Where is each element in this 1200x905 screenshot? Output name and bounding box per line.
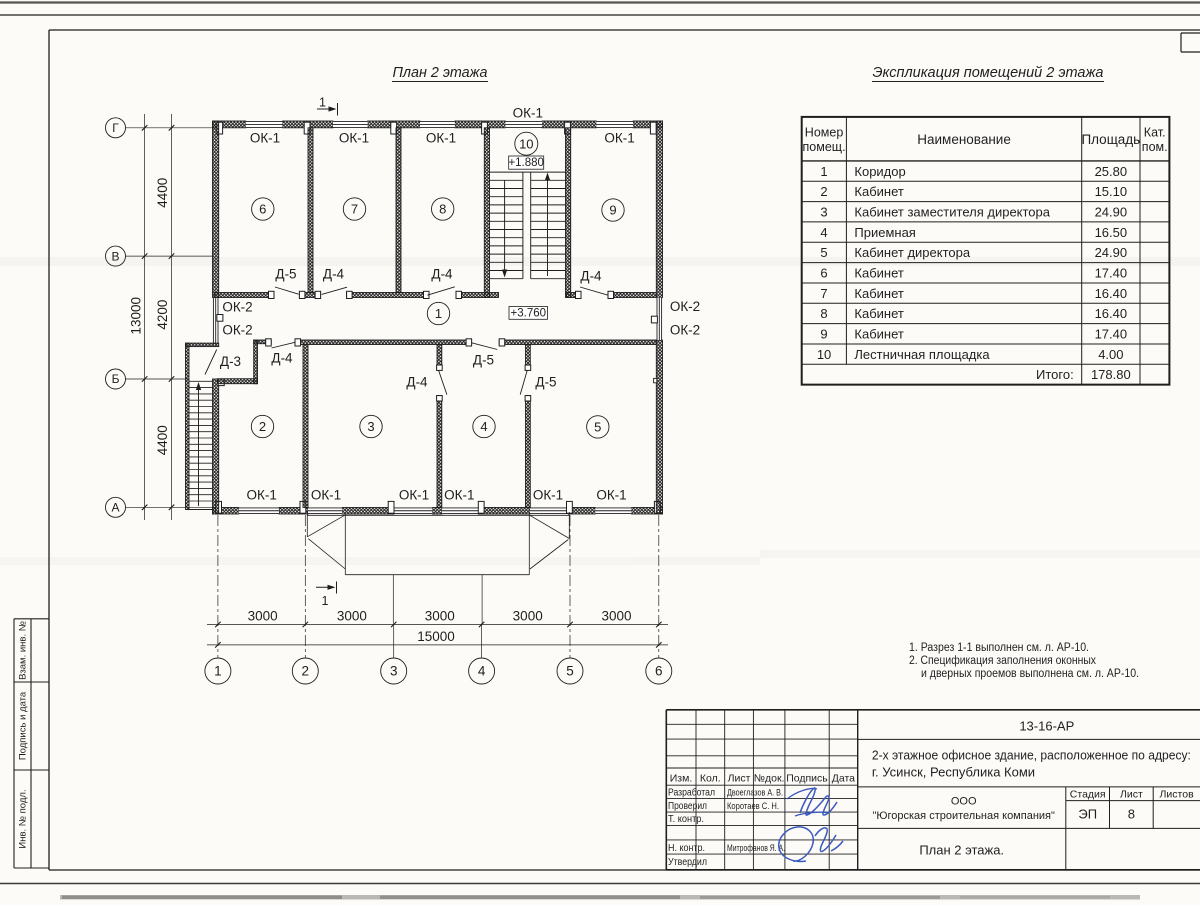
svg-text:План 2 этажа: План 2 этажа <box>393 64 488 81</box>
svg-text:Митрофанов Я. А.: Митрофанов Я. А. <box>727 843 785 853</box>
svg-text:Б: Б <box>112 372 120 386</box>
svg-text:А: А <box>111 501 119 515</box>
svg-text:Д-4: Д-4 <box>580 269 602 284</box>
svg-text:1. Разрез 1-1 выполнен см. л.: 1. Разрез 1-1 выполнен см. л. АР-10. <box>909 642 1089 654</box>
svg-text:Подпись: Подпись <box>786 773 828 785</box>
svg-text:Экспликация помещений 2 этажа: Экспликация помещений 2 этажа <box>873 64 1104 81</box>
svg-text:Изм.: Изм. <box>670 773 693 785</box>
svg-text:4.00: 4.00 <box>1098 347 1123 362</box>
svg-text:24.90: 24.90 <box>1095 204 1128 219</box>
svg-text:ООО: ООО <box>951 796 977 808</box>
svg-text:Площадь: Площадь <box>1081 132 1140 147</box>
svg-text:+3.760: +3.760 <box>511 308 547 320</box>
svg-text:г. Усинск, Республика Коми: г. Усинск, Республика Коми <box>872 765 1035 780</box>
svg-text:1: 1 <box>322 594 329 608</box>
svg-text:ОК-1: ОК-1 <box>426 131 456 146</box>
svg-text:4400: 4400 <box>155 178 170 208</box>
svg-text:Т. контр.: Т. контр. <box>668 814 704 825</box>
svg-text:Кат.: Кат. <box>1144 126 1166 140</box>
svg-text:15000: 15000 <box>417 629 455 644</box>
svg-text:ОК-1: ОК-1 <box>247 488 277 503</box>
svg-text:13-16-АР: 13-16-АР <box>1019 718 1074 733</box>
svg-text:24.90: 24.90 <box>1095 245 1128 260</box>
svg-text:10: 10 <box>817 347 831 362</box>
svg-text:Двоеглазов А. В.: Двоеглазов А. В. <box>727 787 783 797</box>
svg-text:1: 1 <box>820 164 827 179</box>
svg-text:Д-5: Д-5 <box>535 375 556 390</box>
svg-text:3000: 3000 <box>337 609 367 624</box>
svg-text:Д-4: Д-4 <box>406 375 428 390</box>
svg-text:ОК-1: ОК-1 <box>399 488 429 503</box>
svg-text:Лист: Лист <box>728 773 751 785</box>
svg-text:Г: Г <box>112 121 119 135</box>
svg-text:Кабинет: Кабинет <box>854 184 903 199</box>
svg-text:Кабинет: Кабинет <box>854 326 903 341</box>
svg-text:3000: 3000 <box>248 609 278 624</box>
svg-text:4: 4 <box>480 419 487 434</box>
svg-text:13000: 13000 <box>129 297 144 335</box>
svg-text:В: В <box>111 249 119 263</box>
svg-text:Приемная: Приемная <box>854 225 915 240</box>
svg-text:4200: 4200 <box>155 300 170 330</box>
svg-text:Д-5: Д-5 <box>275 267 296 282</box>
svg-text:16.40: 16.40 <box>1095 286 1128 301</box>
svg-text:Кол.: Кол. <box>700 773 721 785</box>
svg-text:ОК-1: ОК-1 <box>533 488 563 503</box>
svg-text:ОК-2: ОК-2 <box>670 323 700 338</box>
svg-text:Кабинет: Кабинет <box>854 306 903 321</box>
svg-text:7: 7 <box>820 286 827 301</box>
svg-text:Н. контр.: Н. контр. <box>668 843 705 854</box>
svg-text:8: 8 <box>439 202 446 217</box>
svg-text:+1.880: +1.880 <box>508 157 544 169</box>
svg-text:16.50: 16.50 <box>1095 225 1128 240</box>
svg-text:Д-4: Д-4 <box>323 267 345 282</box>
svg-text:Подпись и дата: Подпись и дата <box>18 691 29 760</box>
svg-text:Д-4: Д-4 <box>431 267 453 282</box>
svg-text:"Югорская строительная компани: "Югорская строительная компания" <box>872 810 1055 822</box>
svg-text:ОК-1: ОК-1 <box>596 488 626 503</box>
svg-text:9: 9 <box>609 203 616 218</box>
svg-text:Наименование: Наименование <box>917 132 1011 147</box>
svg-text:ОК-1: ОК-1 <box>604 131 634 146</box>
svg-text:1: 1 <box>319 96 326 110</box>
svg-text:3: 3 <box>390 664 398 679</box>
svg-text:Кабинет: Кабинет <box>854 286 903 301</box>
svg-text:16.40: 16.40 <box>1095 306 1128 321</box>
svg-text:ОК-2: ОК-2 <box>222 300 252 315</box>
svg-text:1: 1 <box>214 664 222 679</box>
svg-text:5: 5 <box>820 245 827 260</box>
svg-text:4400: 4400 <box>155 425 170 455</box>
svg-text:Д-5: Д-5 <box>473 353 494 368</box>
svg-text:пом.: пом. <box>1142 140 1168 154</box>
svg-text:Дата: Дата <box>832 773 855 785</box>
svg-text:Кабинет заместителя директора: Кабинет заместителя директора <box>854 204 1050 219</box>
svg-text:9: 9 <box>820 326 827 341</box>
svg-text:5: 5 <box>566 664 574 679</box>
svg-text:17.40: 17.40 <box>1095 326 1128 341</box>
svg-text:4: 4 <box>478 664 486 679</box>
svg-text:2: 2 <box>302 664 310 679</box>
svg-text:Итого:: Итого: <box>1036 367 1074 382</box>
svg-text:№док.: №док. <box>754 773 785 785</box>
svg-text:3: 3 <box>820 204 827 219</box>
svg-text:3000: 3000 <box>425 609 455 624</box>
svg-text:Коротаев С. Н.: Коротаев С. Н. <box>727 801 779 811</box>
svg-text:План 2 этажа.: План 2 этажа. <box>919 842 1004 857</box>
svg-text:Лист: Лист <box>1120 788 1143 800</box>
svg-text:Проверил: Проверил <box>668 801 707 812</box>
svg-text:3000: 3000 <box>601 609 631 624</box>
svg-text:Кабинет директора: Кабинет директора <box>854 245 970 260</box>
svg-text:178.80: 178.80 <box>1091 367 1131 382</box>
svg-text:Разработал: Разработал <box>668 786 715 798</box>
svg-text:Д-4: Д-4 <box>271 351 293 366</box>
svg-text:25.80: 25.80 <box>1095 164 1128 179</box>
svg-text:15.10: 15.10 <box>1095 184 1128 199</box>
svg-text:10: 10 <box>519 136 533 151</box>
svg-text:8: 8 <box>1128 806 1135 821</box>
svg-text:17.40: 17.40 <box>1095 265 1128 280</box>
svg-text:Лестничная площадка: Лестничная площадка <box>854 347 990 362</box>
svg-text:6: 6 <box>259 202 266 217</box>
svg-text:ОК-1: ОК-1 <box>513 106 543 121</box>
svg-text:помещ.: помещ. <box>803 140 846 154</box>
svg-text:3000: 3000 <box>513 609 543 624</box>
svg-text:ОК-1: ОК-1 <box>311 488 341 503</box>
svg-text:Номер: Номер <box>805 126 844 140</box>
svg-text:2-х этажное офисное здание, ра: 2-х этажное офисное здание, расположенно… <box>872 748 1191 763</box>
svg-text:7: 7 <box>351 202 358 217</box>
svg-text:и дверных проемов выполнена см: и дверных проемов выполнена см. л. АР-10… <box>921 668 1139 680</box>
svg-text:Взам. инв. №: Взам. инв. № <box>18 621 29 680</box>
svg-text:ОК-1: ОК-1 <box>339 131 369 146</box>
svg-text:ЭП: ЭП <box>1078 806 1097 821</box>
svg-text:Листов: Листов <box>1160 788 1195 800</box>
svg-text:1: 1 <box>435 306 442 321</box>
svg-text:5: 5 <box>594 419 601 434</box>
svg-text:6: 6 <box>655 664 663 679</box>
svg-text:8: 8 <box>820 306 827 321</box>
svg-text:ОК-2: ОК-2 <box>222 323 252 338</box>
svg-text:Коридор: Коридор <box>854 164 905 179</box>
svg-text:Кабинет: Кабинет <box>854 265 903 280</box>
svg-text:2: 2 <box>259 419 266 434</box>
svg-text:ОК-2: ОК-2 <box>670 299 700 314</box>
svg-text:Утвердил: Утвердил <box>668 857 707 868</box>
svg-text:ОК-1: ОК-1 <box>250 131 280 146</box>
svg-text:Д-3: Д-3 <box>220 354 241 369</box>
svg-text:ОК-1: ОК-1 <box>444 488 474 503</box>
svg-text:2: 2 <box>820 184 827 199</box>
svg-text:Стадия: Стадия <box>1070 788 1106 800</box>
svg-text:Инв. № подл.: Инв. № подл. <box>18 789 29 848</box>
svg-text:3: 3 <box>367 419 374 434</box>
svg-text:4: 4 <box>820 225 827 240</box>
svg-text:6: 6 <box>820 265 827 280</box>
svg-text:2. Спецификация заполнения око: 2. Спецификация заполнения оконных <box>909 655 1096 667</box>
